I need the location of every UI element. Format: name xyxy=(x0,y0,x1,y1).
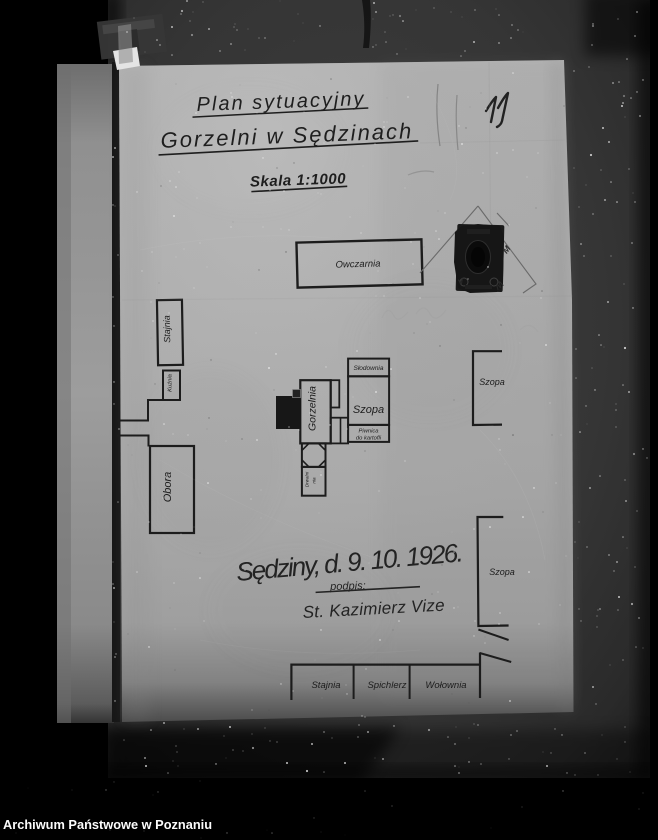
svg-text:Gorzelnia: Gorzelnia xyxy=(307,386,319,431)
svg-text:Stajnia: Stajnia xyxy=(311,680,340,691)
svg-text:Piwnica: Piwnica xyxy=(359,429,380,435)
svg-text:Wołownia: Wołownia xyxy=(425,680,466,691)
svg-text:Owczarnia: Owczarnia xyxy=(335,258,380,270)
svg-text:Szopa: Szopa xyxy=(489,567,515,577)
svg-text:Słodownia: Słodownia xyxy=(354,365,384,372)
svg-text:Spichlerz: Spichlerz xyxy=(367,680,406,691)
svg-text:Archiwum Państwowe w Poznaniu: Archiwum Państwowe w Poznaniu xyxy=(3,817,212,832)
svg-text:do kartofli: do kartofli xyxy=(356,436,382,442)
svg-text:Szopa: Szopa xyxy=(353,404,384,416)
svg-text:Drwalni: Drwalni xyxy=(305,471,310,487)
svg-text:Szopa: Szopa xyxy=(479,377,505,387)
svg-text:Kuźnia: Kuźnia xyxy=(168,373,174,392)
svg-text:Stajnia: Stajnia xyxy=(162,315,172,343)
svg-text:nia: nia xyxy=(312,477,317,484)
svg-text:Obora: Obora xyxy=(162,472,174,503)
